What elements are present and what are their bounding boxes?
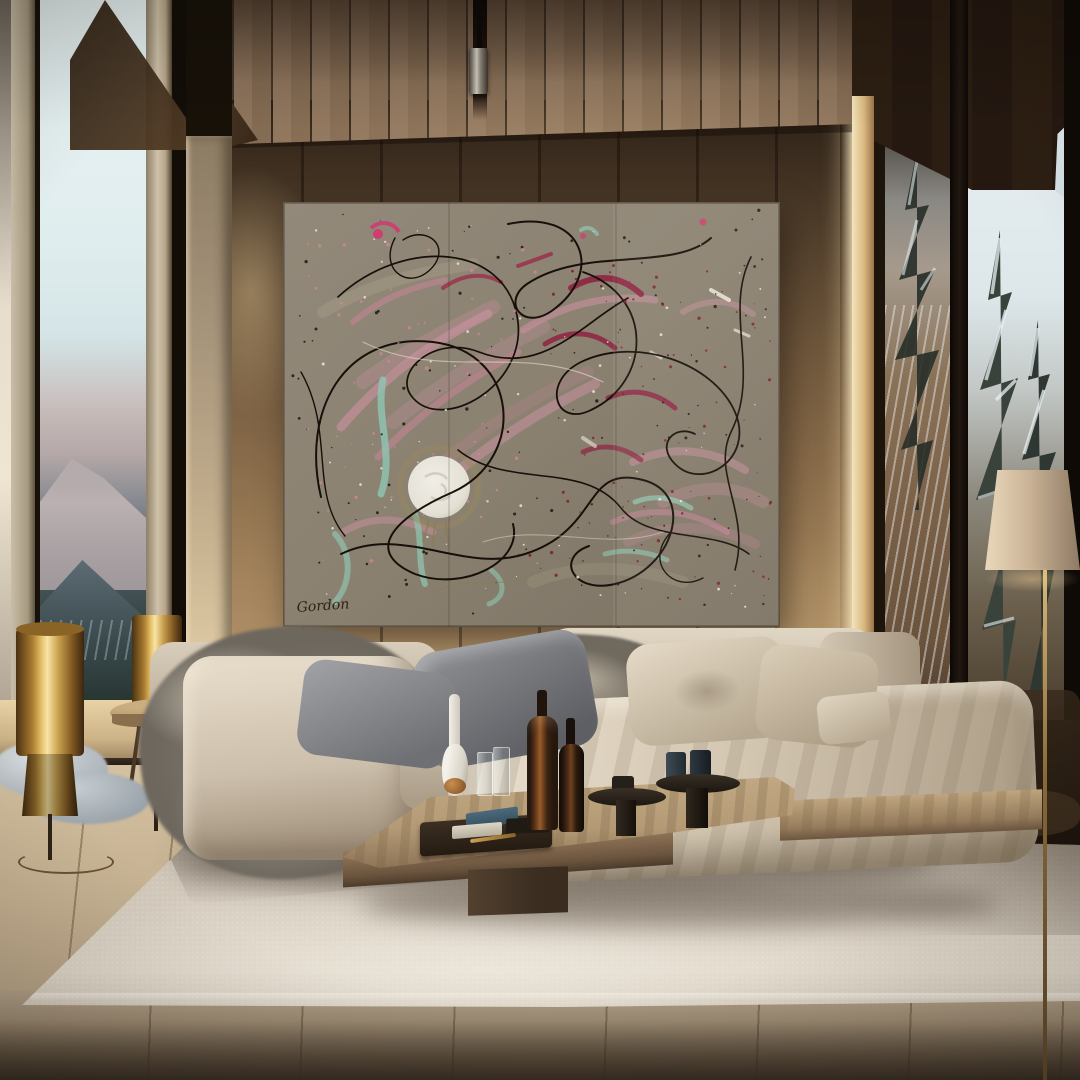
- grey-pillow: [295, 657, 458, 771]
- living-room-scene: Gordon: [0, 0, 1080, 1080]
- floor-lamp: [985, 470, 1080, 1080]
- coffee-table-base: [468, 866, 568, 915]
- brown-glass-bottle: [559, 744, 584, 832]
- amber-glass-orb: [444, 778, 466, 794]
- lamp-glow: [985, 566, 1080, 592]
- pedestal-stem: [616, 800, 636, 836]
- small-cushion: [816, 690, 893, 745]
- drinking-glass: [493, 747, 510, 796]
- pedestal-stem: [686, 788, 708, 828]
- brown-glass-bottle: [527, 716, 558, 830]
- coffee-table-shadow: [360, 880, 1000, 928]
- lamp-stem: [1043, 568, 1047, 1080]
- drinking-glass: [477, 752, 493, 796]
- lamp-shade: [985, 470, 1080, 570]
